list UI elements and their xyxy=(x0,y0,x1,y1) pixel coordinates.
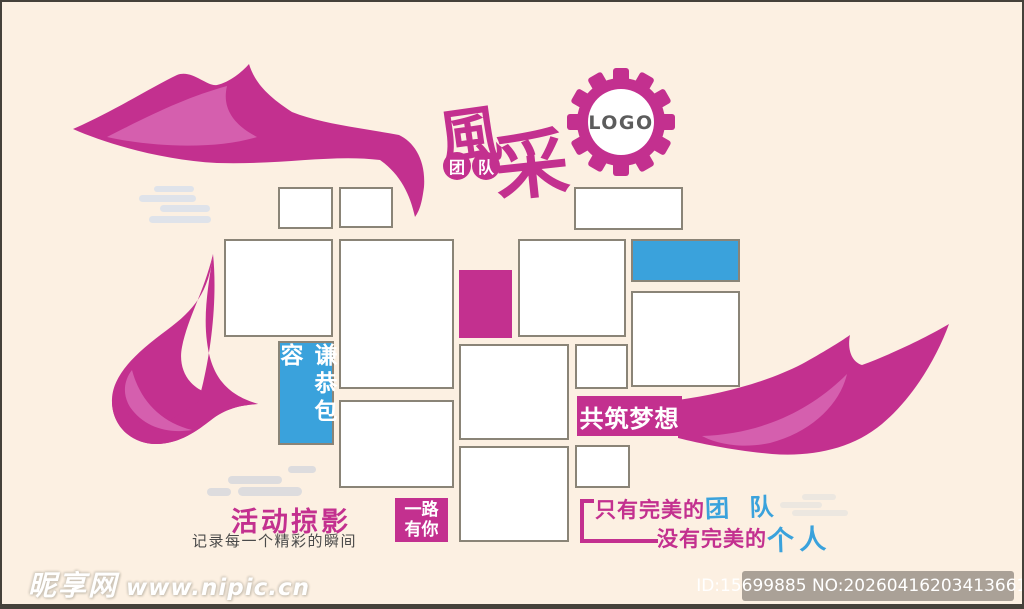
journey-line-1: 一路 xyxy=(405,500,439,520)
slogan-bracket-bottom xyxy=(580,539,658,543)
photo-frame xyxy=(459,446,569,542)
photo-frame xyxy=(278,187,333,229)
journey-with-you-box: 一路 有你 xyxy=(395,498,448,542)
cloud-decoration-bottom-left xyxy=(207,466,316,496)
journey-line-2: 有你 xyxy=(405,520,439,540)
team-badge-dui: 队 xyxy=(472,152,500,180)
photo-frame xyxy=(224,239,333,337)
site-watermark: 昵享网 www.nipic.cn xyxy=(28,564,310,604)
build-dreams-label: 共筑梦想 xyxy=(577,396,682,436)
humble-tolerance-label: 谦恭包容 xyxy=(280,343,332,443)
slogan-line2-magenta: 没有完美的 xyxy=(657,523,767,553)
photo-frame xyxy=(339,400,454,488)
blue-accent-block xyxy=(631,239,740,282)
title-char-cai: 采 xyxy=(489,102,574,216)
team-badge-tuan: 团 xyxy=(443,152,471,180)
slogan-bracket-vertical xyxy=(580,499,584,542)
magenta-accent-block xyxy=(459,270,512,338)
photo-frame xyxy=(575,445,630,488)
image-id-badge: ID:15699885 NO:20260416203413661104 xyxy=(742,571,1014,601)
cloud-decoration-left xyxy=(139,186,211,223)
humble-tolerance-box: 谦恭包容 xyxy=(278,341,334,445)
slogan-line1-magenta: 只有完美的 xyxy=(595,494,705,524)
photo-frame xyxy=(459,344,569,440)
photo-frame xyxy=(339,187,393,228)
photo-frame xyxy=(518,239,626,337)
gear-logo: LOGO xyxy=(566,67,676,177)
photo-frame xyxy=(631,291,740,387)
logo-placeholder-text: LOGO xyxy=(588,112,653,134)
journey-with-you-label: 一路 有你 xyxy=(395,498,448,542)
site-watermark-name: 昵享网 xyxy=(28,564,118,604)
culture-wall-poster: 風 采 团 队 xyxy=(0,0,1024,609)
build-dreams-box: 共筑梦想 xyxy=(577,396,682,436)
site-watermark-url: www.nipic.cn xyxy=(126,575,310,601)
photo-frame xyxy=(339,239,454,389)
slogan-line2-blue: 个人 xyxy=(766,517,831,558)
activity-snapshot-subtitle: 记录每一个精彩的瞬间 xyxy=(192,530,357,551)
cloud-decoration-right xyxy=(780,494,848,516)
photo-frame xyxy=(575,344,628,389)
photo-frame xyxy=(574,187,683,230)
